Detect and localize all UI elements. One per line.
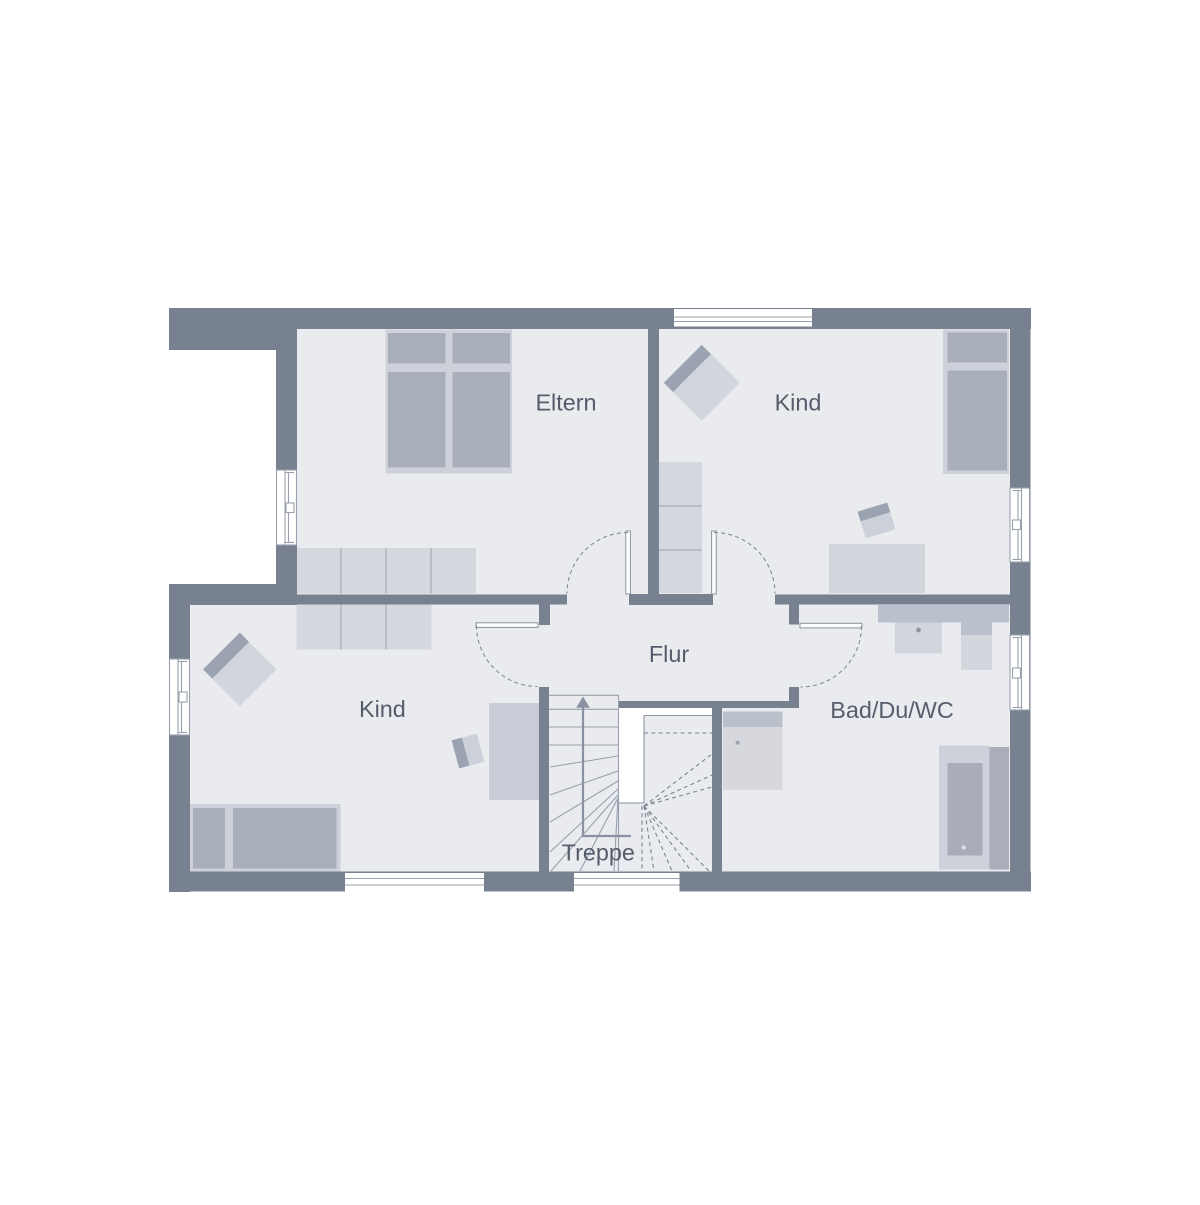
svg-text:Eltern: Eltern xyxy=(535,389,596,415)
svg-text:Flur: Flur xyxy=(649,641,689,667)
svg-text:Treppe: Treppe xyxy=(562,840,635,866)
svg-text:Kind: Kind xyxy=(359,696,406,722)
svg-text:Kind: Kind xyxy=(775,389,822,415)
svg-text:Bad/Du/WC: Bad/Du/WC xyxy=(830,697,954,723)
